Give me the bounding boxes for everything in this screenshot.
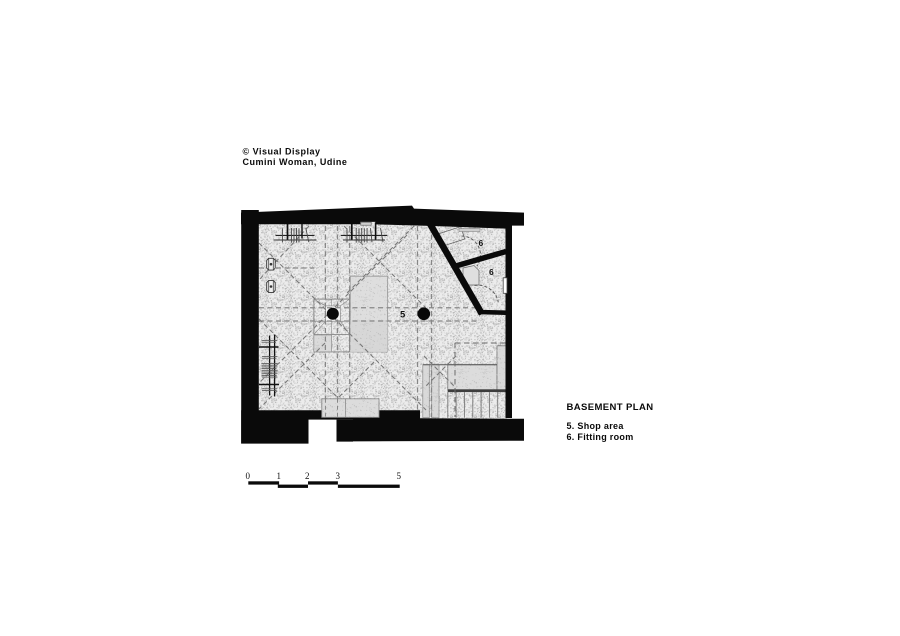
svg-text:BASEMENT PLAN: BASEMENT PLAN xyxy=(567,402,654,413)
svg-text:6: 6 xyxy=(489,267,494,277)
svg-text:1: 1 xyxy=(277,471,282,481)
svg-text:0: 0 xyxy=(246,471,251,481)
svg-text:© Visual Display: © Visual Display xyxy=(243,147,321,157)
svg-text:5: 5 xyxy=(397,471,402,481)
svg-text:2: 2 xyxy=(305,471,310,481)
svg-text:6. Fitting room: 6. Fitting room xyxy=(567,432,634,442)
svg-text:5: 5 xyxy=(400,310,406,321)
svg-text:3: 3 xyxy=(336,471,341,481)
svg-text:Cumini Woman, Udine: Cumini Woman, Udine xyxy=(243,157,348,167)
svg-text:5. Shop area: 5. Shop area xyxy=(567,421,625,431)
svg-text:6: 6 xyxy=(479,238,484,248)
